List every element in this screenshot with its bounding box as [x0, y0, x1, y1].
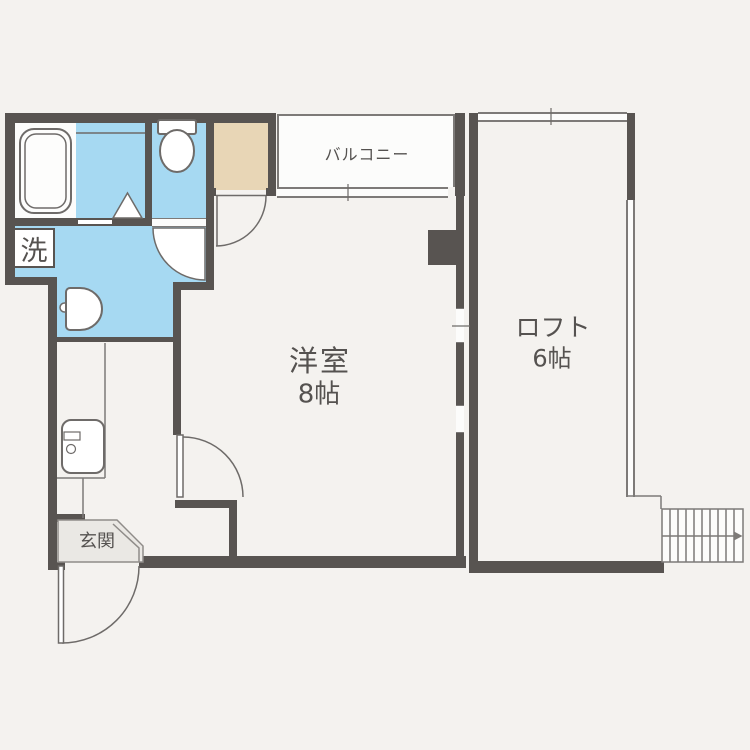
- wall-loft-left: [469, 113, 478, 563]
- wall-room-right-b: [456, 343, 464, 405]
- entrance-label: 玄関: [79, 527, 115, 553]
- wall-pillar-block: [428, 230, 456, 265]
- wall-under-closet-right: [266, 188, 276, 196]
- wall-room-right-c: [456, 433, 464, 556]
- closet-door: [216, 196, 266, 247]
- entrance-door: [59, 566, 140, 643]
- laundry-box: 洗: [13, 228, 55, 268]
- wall-under-closet-left: [206, 188, 216, 196]
- loft-size-label: 6帖: [532, 339, 571, 374]
- room-loft-opening-lower: [456, 405, 464, 433]
- stairs-direction-arrow: [734, 532, 743, 541]
- bath-door-threshold: [78, 220, 112, 224]
- closet-floor: [213, 118, 268, 190]
- toilet-room-floor: [152, 123, 206, 218]
- balcony-label: バルコニー: [325, 141, 410, 165]
- wall-loft-top-right-pillar: [627, 113, 635, 200]
- room-size-label: 8帖: [298, 374, 341, 411]
- laundry-label: 洗: [21, 229, 48, 268]
- washroom-floor-lower: [57, 283, 173, 339]
- wall-closet-right: [268, 113, 276, 196]
- room-loft-opening-upper: [456, 308, 464, 343]
- floor-plan: バルコニー 洋室 8帖 ロフト 6帖 玄関 洗: [0, 0, 750, 750]
- wall-kitchen-divider: [173, 290, 181, 435]
- wall-genkan-right: [229, 508, 237, 562]
- kitchen-counter: [57, 343, 105, 518]
- wall-toilet-right: [206, 113, 214, 282]
- wall-washroom-step: [173, 282, 214, 290]
- kitchen-sink: [62, 420, 104, 473]
- wall-bath-divider: [145, 113, 152, 218]
- wall-room-bottom-left: [175, 500, 237, 508]
- room-balcony-window: [277, 187, 448, 198]
- wall-washroom-kitchen: [57, 337, 181, 342]
- shower-room-floor: [76, 123, 145, 218]
- wall-left-lower: [48, 277, 57, 570]
- bathroom-floor: [15, 123, 76, 218]
- wall-room-right-a: [456, 196, 464, 308]
- stairs: [662, 509, 743, 562]
- loft-window-jog: [627, 496, 661, 509]
- wall-loft-bottom: [469, 561, 664, 573]
- wall-bottom-stub: [57, 562, 65, 570]
- toilet-door-threshold: [152, 218, 206, 227]
- wall-balcony-right-pillar: [455, 113, 465, 196]
- room-door: [177, 435, 243, 497]
- wall-bottom-main: [139, 556, 466, 568]
- wall-genkan-top-stub: [53, 514, 85, 522]
- wall-top: [5, 113, 210, 123]
- loft-top-window: [478, 112, 627, 122]
- wall-closet-top: [206, 113, 276, 123]
- loft-right-window: [626, 200, 635, 497]
